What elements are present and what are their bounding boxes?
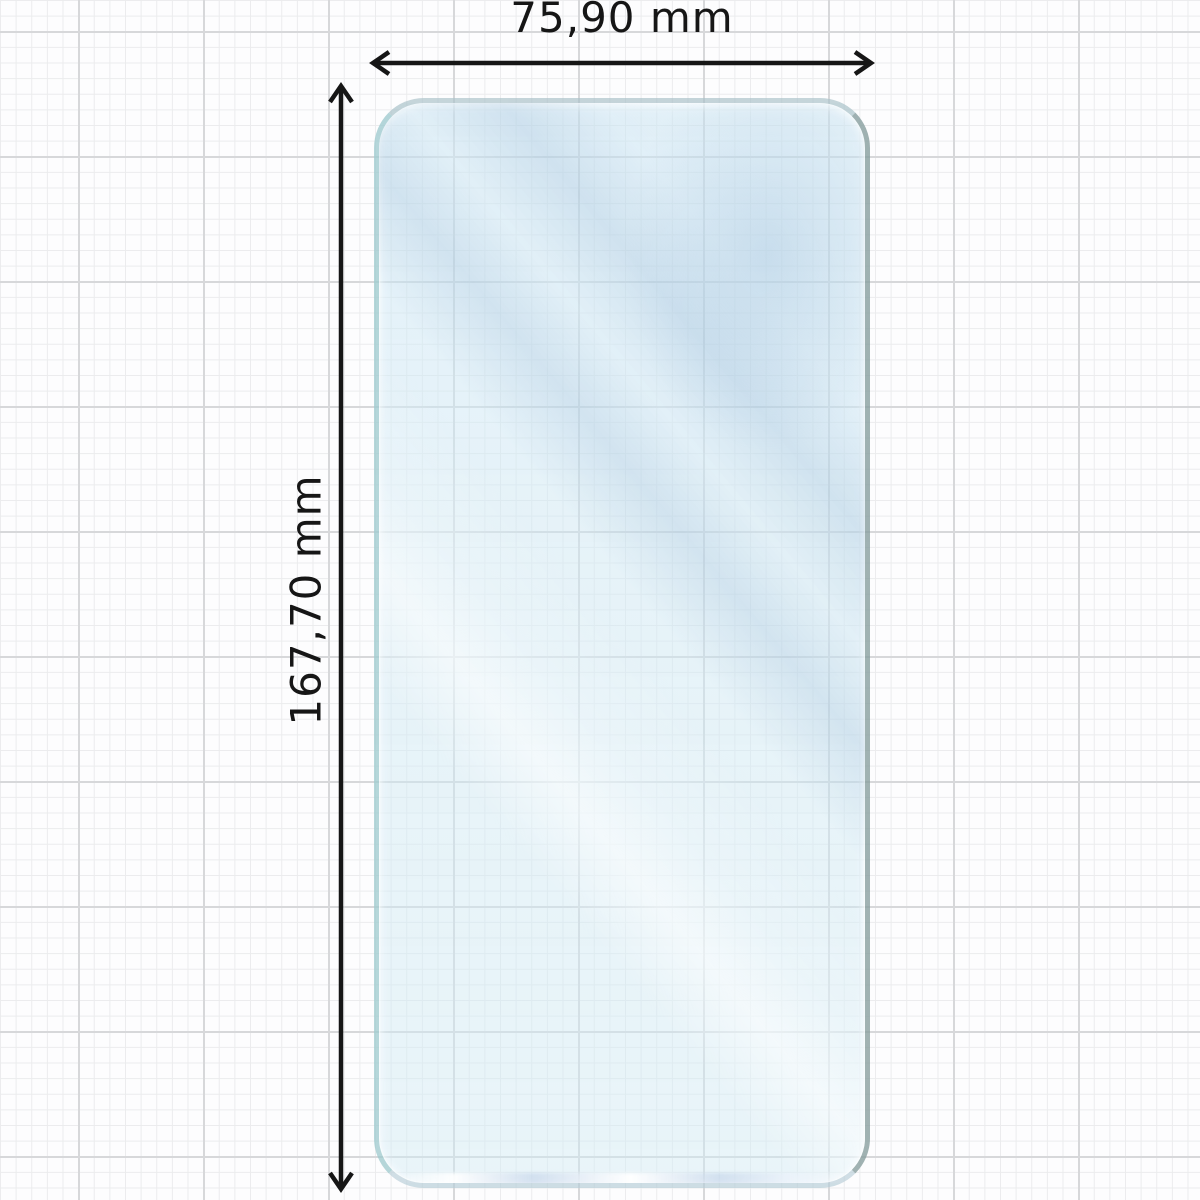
width-dimension-label: 75,90 mm [372,0,872,42]
height-dimension-label: 167,70 mm [282,474,331,725]
screen-protector-film [374,98,870,1188]
film-glass-reflection [379,103,865,1183]
film-bottom-edge-highlight [401,1173,843,1185]
diagram-canvas: 75,90 mm 167,70 mm [0,0,1200,1200]
